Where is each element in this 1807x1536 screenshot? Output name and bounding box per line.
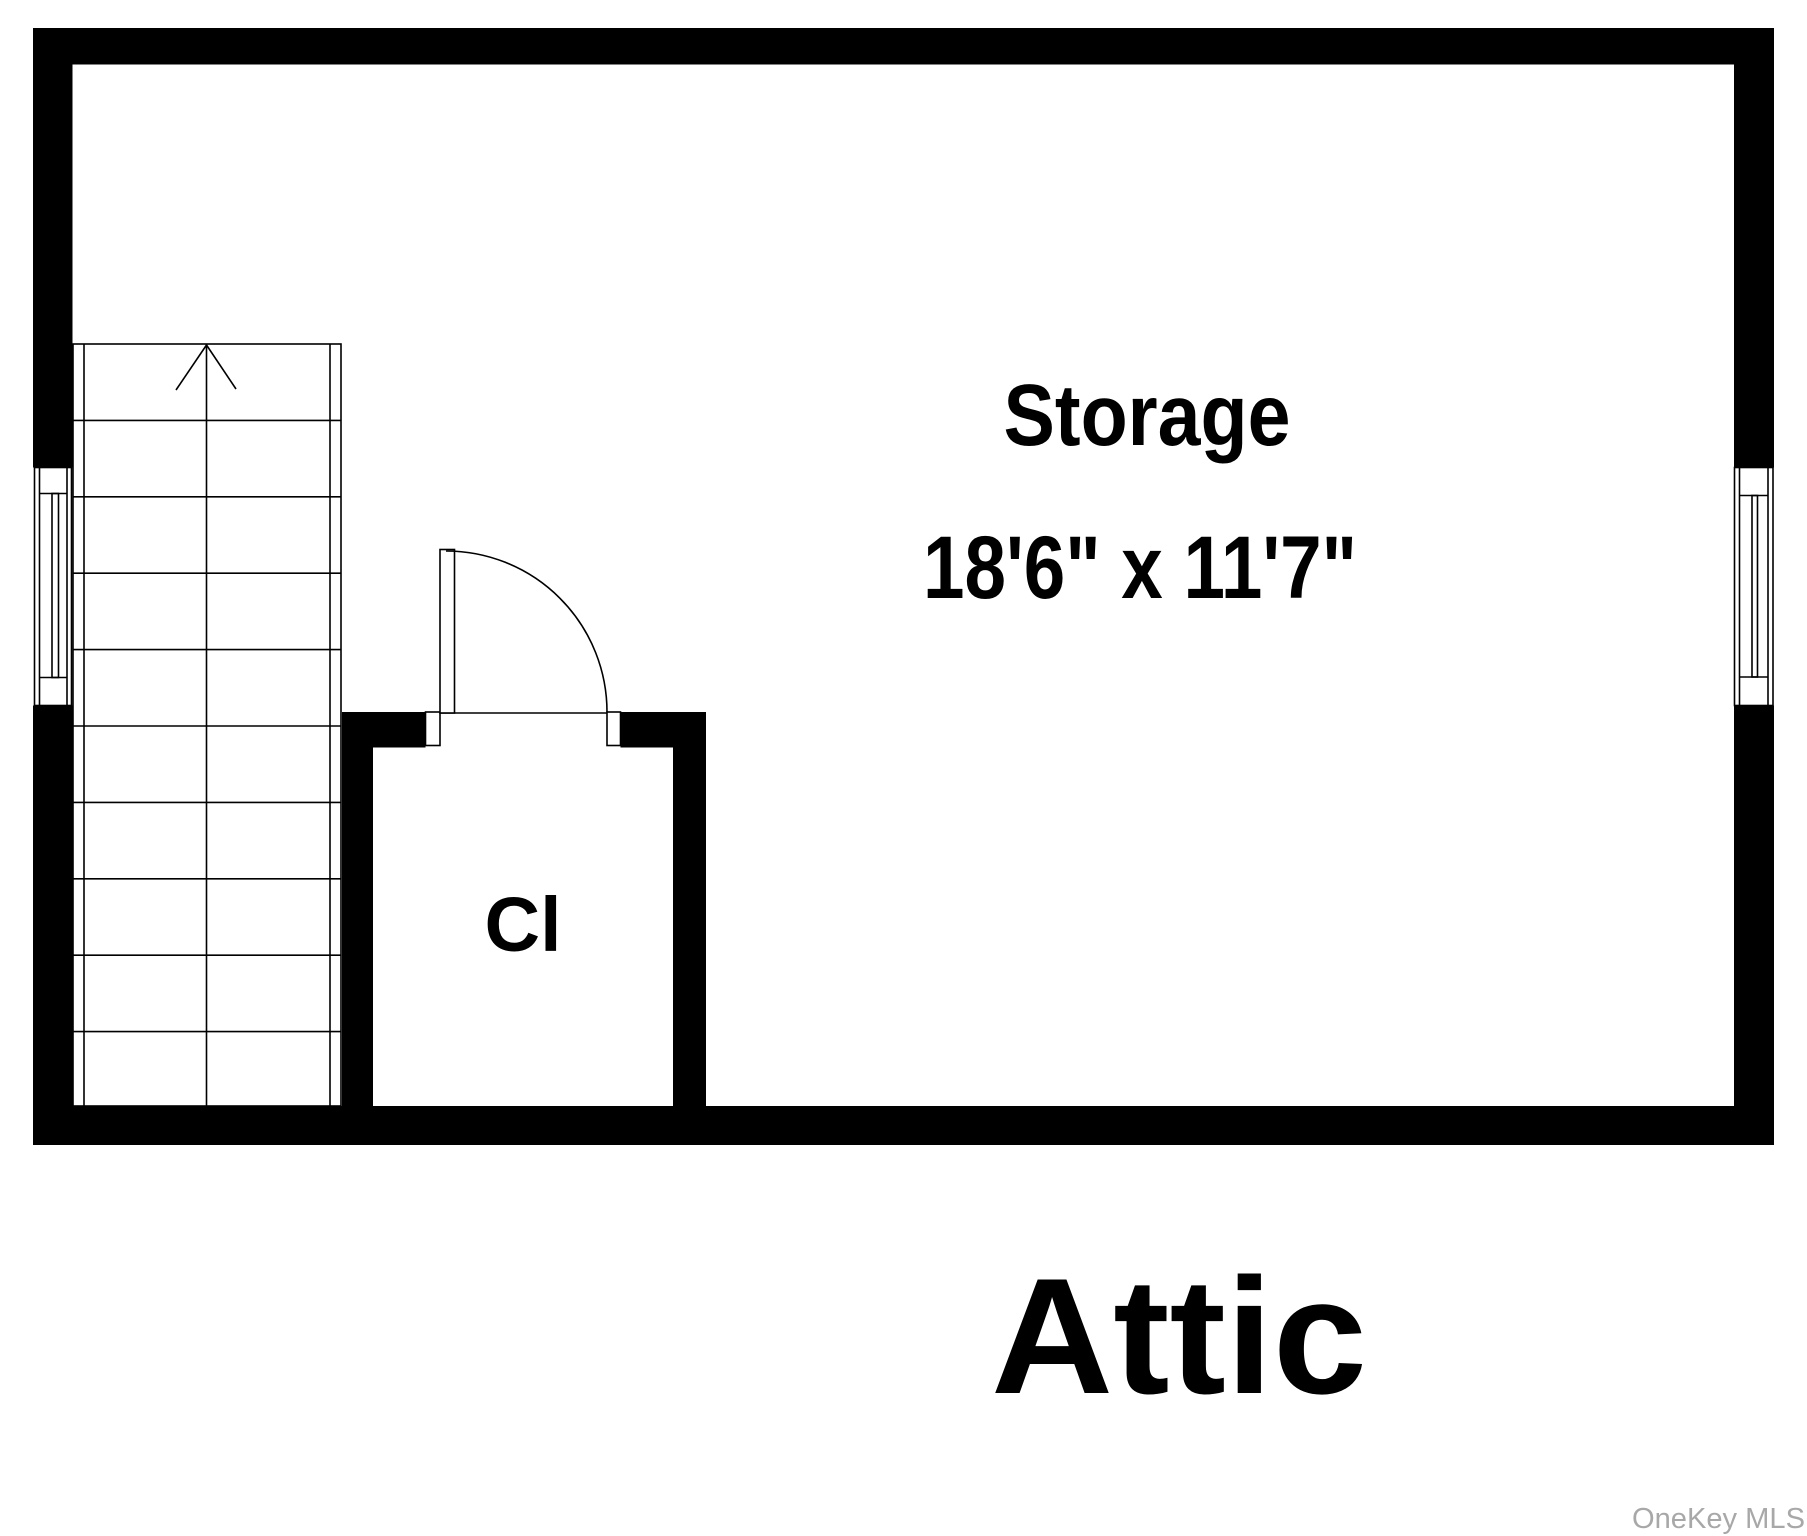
svg-text:18'6" x 11'7": 18'6" x 11'7" xyxy=(923,517,1357,617)
svg-text:OneKey MLS: OneKey MLS xyxy=(1632,1503,1805,1535)
svg-text:Storage: Storage xyxy=(1004,366,1291,464)
svg-text:Attic: Attic xyxy=(991,1244,1367,1428)
svg-text:Cl: Cl xyxy=(485,882,562,968)
